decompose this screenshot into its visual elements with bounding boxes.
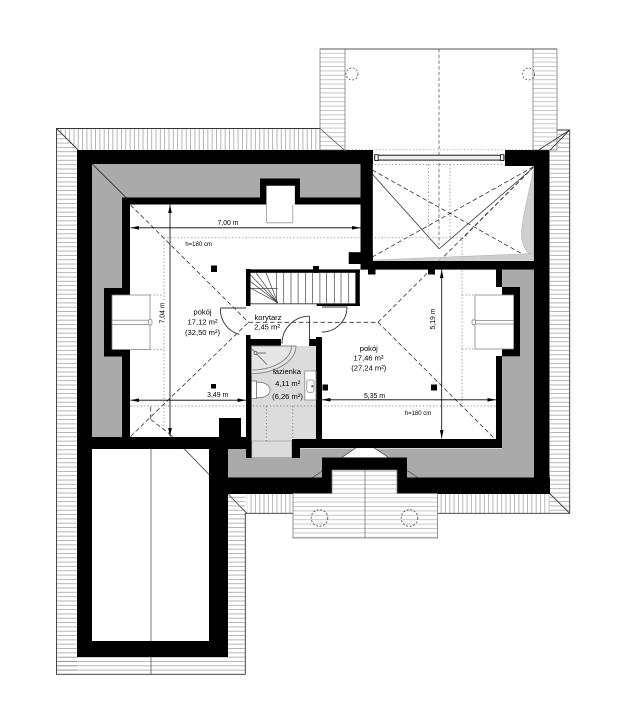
svg-text:3,49 m: 3,49 m — [207, 392, 228, 399]
svg-text:pokój: pokój — [193, 308, 211, 317]
svg-text:h=180 cm: h=180 cm — [185, 242, 212, 248]
svg-text:7,00 m: 7,00 m — [217, 220, 238, 227]
svg-text:(32,50 m²): (32,50 m²) — [185, 328, 220, 337]
svg-text:2,45 m²: 2,45 m² — [254, 323, 280, 332]
svg-text:5,35 m: 5,35 m — [364, 393, 385, 400]
svg-text:5,19 m: 5,19 m — [430, 308, 437, 329]
svg-text:łazienka: łazienka — [273, 367, 302, 376]
svg-text:17,46 m²: 17,46 m² — [354, 354, 384, 363]
svg-text:17,12 m²: 17,12 m² — [188, 318, 218, 327]
svg-text:7,04 m: 7,04 m — [159, 302, 166, 323]
svg-text:h=180 cm: h=180 cm — [405, 411, 432, 417]
svg-text:(27,24 m²): (27,24 m²) — [351, 364, 386, 373]
svg-text:4,11 m²: 4,11 m² — [275, 379, 301, 388]
svg-text:(6,26 m²): (6,26 m²) — [272, 392, 303, 401]
svg-text:korytarz: korytarz — [254, 313, 281, 322]
svg-text:pokój: pokój — [360, 344, 378, 353]
